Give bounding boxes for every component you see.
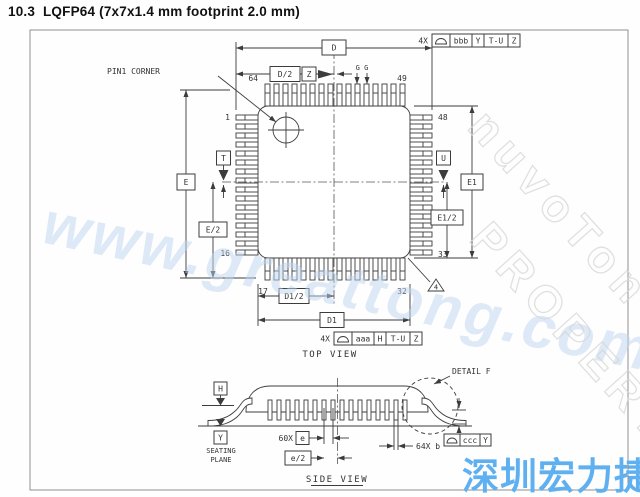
pin (410, 151, 432, 156)
cjk-watermark: 深圳宏力捷 (462, 455, 640, 497)
pin (391, 84, 396, 106)
pin (265, 84, 270, 106)
pin (301, 84, 306, 106)
pin (236, 151, 258, 156)
pin (236, 223, 258, 228)
pin (313, 400, 317, 420)
seating-plane-label: SEATING (206, 447, 236, 455)
dim-label-D: D (332, 44, 337, 53)
pin (236, 160, 258, 165)
pin (410, 232, 432, 237)
pin1-corner-label: PIN1 CORNER (107, 67, 160, 76)
pin (328, 84, 333, 106)
dim-label-G: G G (356, 64, 369, 72)
pin-row-top (265, 84, 405, 106)
detail-f-label: DETAIL F (452, 367, 491, 376)
seating-plane-label: PLANE (210, 456, 231, 464)
fcf-cell (334, 332, 352, 345)
dim-label-E12: E1/2 (437, 214, 456, 223)
pin (410, 133, 432, 138)
datum-label-Z: Z (307, 70, 312, 79)
dim-qty-60x: 60X (279, 434, 294, 443)
fcf-qty: 4X (418, 37, 428, 46)
side-view-label: SIDE VIEW (306, 475, 368, 485)
dim-label-E: E (184, 178, 189, 187)
pin (400, 84, 405, 106)
fcf-datum: T-U (391, 335, 406, 344)
pin (410, 115, 432, 120)
pin (236, 142, 258, 147)
pin-number: 1 (225, 113, 230, 122)
fcf-datum: Y (476, 37, 481, 46)
pin (373, 84, 378, 106)
fcf-datum: Z (512, 37, 517, 46)
pin (236, 214, 258, 219)
dim-label-e2: e/2 (291, 454, 306, 463)
dim-label-e: e (300, 434, 305, 443)
pin (337, 84, 342, 106)
lqfp64-package-drawing: PIN1 CORNER D D/2 Z G G 4X (0, 0, 640, 497)
pin (410, 187, 432, 192)
datasheet-page: 10.3 LQFP64 (7x7x1.4 mm footprint 2.0 mm… (0, 0, 640, 497)
pin (410, 223, 432, 228)
datum-label-U: U (441, 154, 446, 163)
pin (394, 400, 398, 420)
pin (274, 84, 279, 106)
pin (410, 142, 432, 147)
pin-number: 49 (397, 74, 407, 83)
pin-row-right (410, 115, 432, 255)
pin (268, 400, 272, 420)
pin (367, 400, 371, 420)
side-view: H Y SEATING PLANE 60X e e/2 (198, 367, 491, 486)
datum-label-T: T (221, 154, 226, 163)
pin (346, 84, 351, 106)
fcf-qty: 4X (320, 335, 330, 344)
pin-number: 33 (438, 250, 448, 259)
datum-triangle-icon (219, 170, 229, 181)
datum-label-Y: Y (218, 434, 223, 443)
pin (355, 84, 360, 106)
fcf-cell (444, 434, 460, 446)
pin (410, 124, 432, 129)
pin (410, 160, 432, 165)
pin (236, 115, 258, 120)
pin (364, 84, 369, 106)
pin (349, 400, 353, 420)
pin-number: 48 (438, 113, 448, 122)
fcf-cell (432, 34, 450, 47)
pin (410, 241, 432, 246)
dim-label-D2: D/2 (278, 70, 293, 79)
gullwing-lead-left (208, 398, 252, 426)
datum-triangle-icon (216, 398, 225, 406)
package-body-side (246, 386, 428, 412)
pin (410, 205, 432, 210)
pin (358, 400, 362, 420)
pin (385, 400, 389, 420)
pin (410, 169, 432, 174)
fcf-datum: H (378, 335, 383, 344)
pin (236, 205, 258, 210)
fcf-datum: T-U (489, 37, 504, 46)
fcf-tol: ccc (463, 436, 478, 445)
pin (304, 400, 308, 420)
detail-leader-line (434, 376, 450, 384)
pin (310, 84, 315, 106)
pin (410, 196, 432, 201)
pin (295, 400, 299, 420)
pin (319, 84, 324, 106)
pin (236, 169, 258, 174)
dim-label-64x-b: 64X b (416, 442, 440, 451)
fcf-tol: aaa (356, 335, 371, 344)
pin (286, 400, 290, 420)
pin (283, 84, 288, 106)
pin (340, 400, 344, 420)
pin (292, 84, 297, 106)
pin (236, 187, 258, 192)
pin (236, 124, 258, 129)
pin (382, 84, 387, 106)
pin (410, 250, 432, 255)
fcf-datum: Y (483, 436, 488, 445)
datum-triangle-icon (318, 70, 333, 79)
datum-label-H: H (218, 385, 223, 394)
fcf-tol: bbb (454, 37, 469, 46)
pin (277, 400, 281, 420)
datum-triangle-icon (439, 170, 449, 181)
dim-label-E1: E1 (467, 178, 477, 187)
pin (403, 400, 407, 420)
pin-number: 64 (248, 74, 258, 83)
pin (376, 400, 380, 420)
pin (410, 214, 432, 219)
fcf-datum: Z (414, 335, 419, 344)
pin (236, 196, 258, 201)
pin (236, 133, 258, 138)
top-view-label: TOP VIEW (302, 350, 357, 360)
